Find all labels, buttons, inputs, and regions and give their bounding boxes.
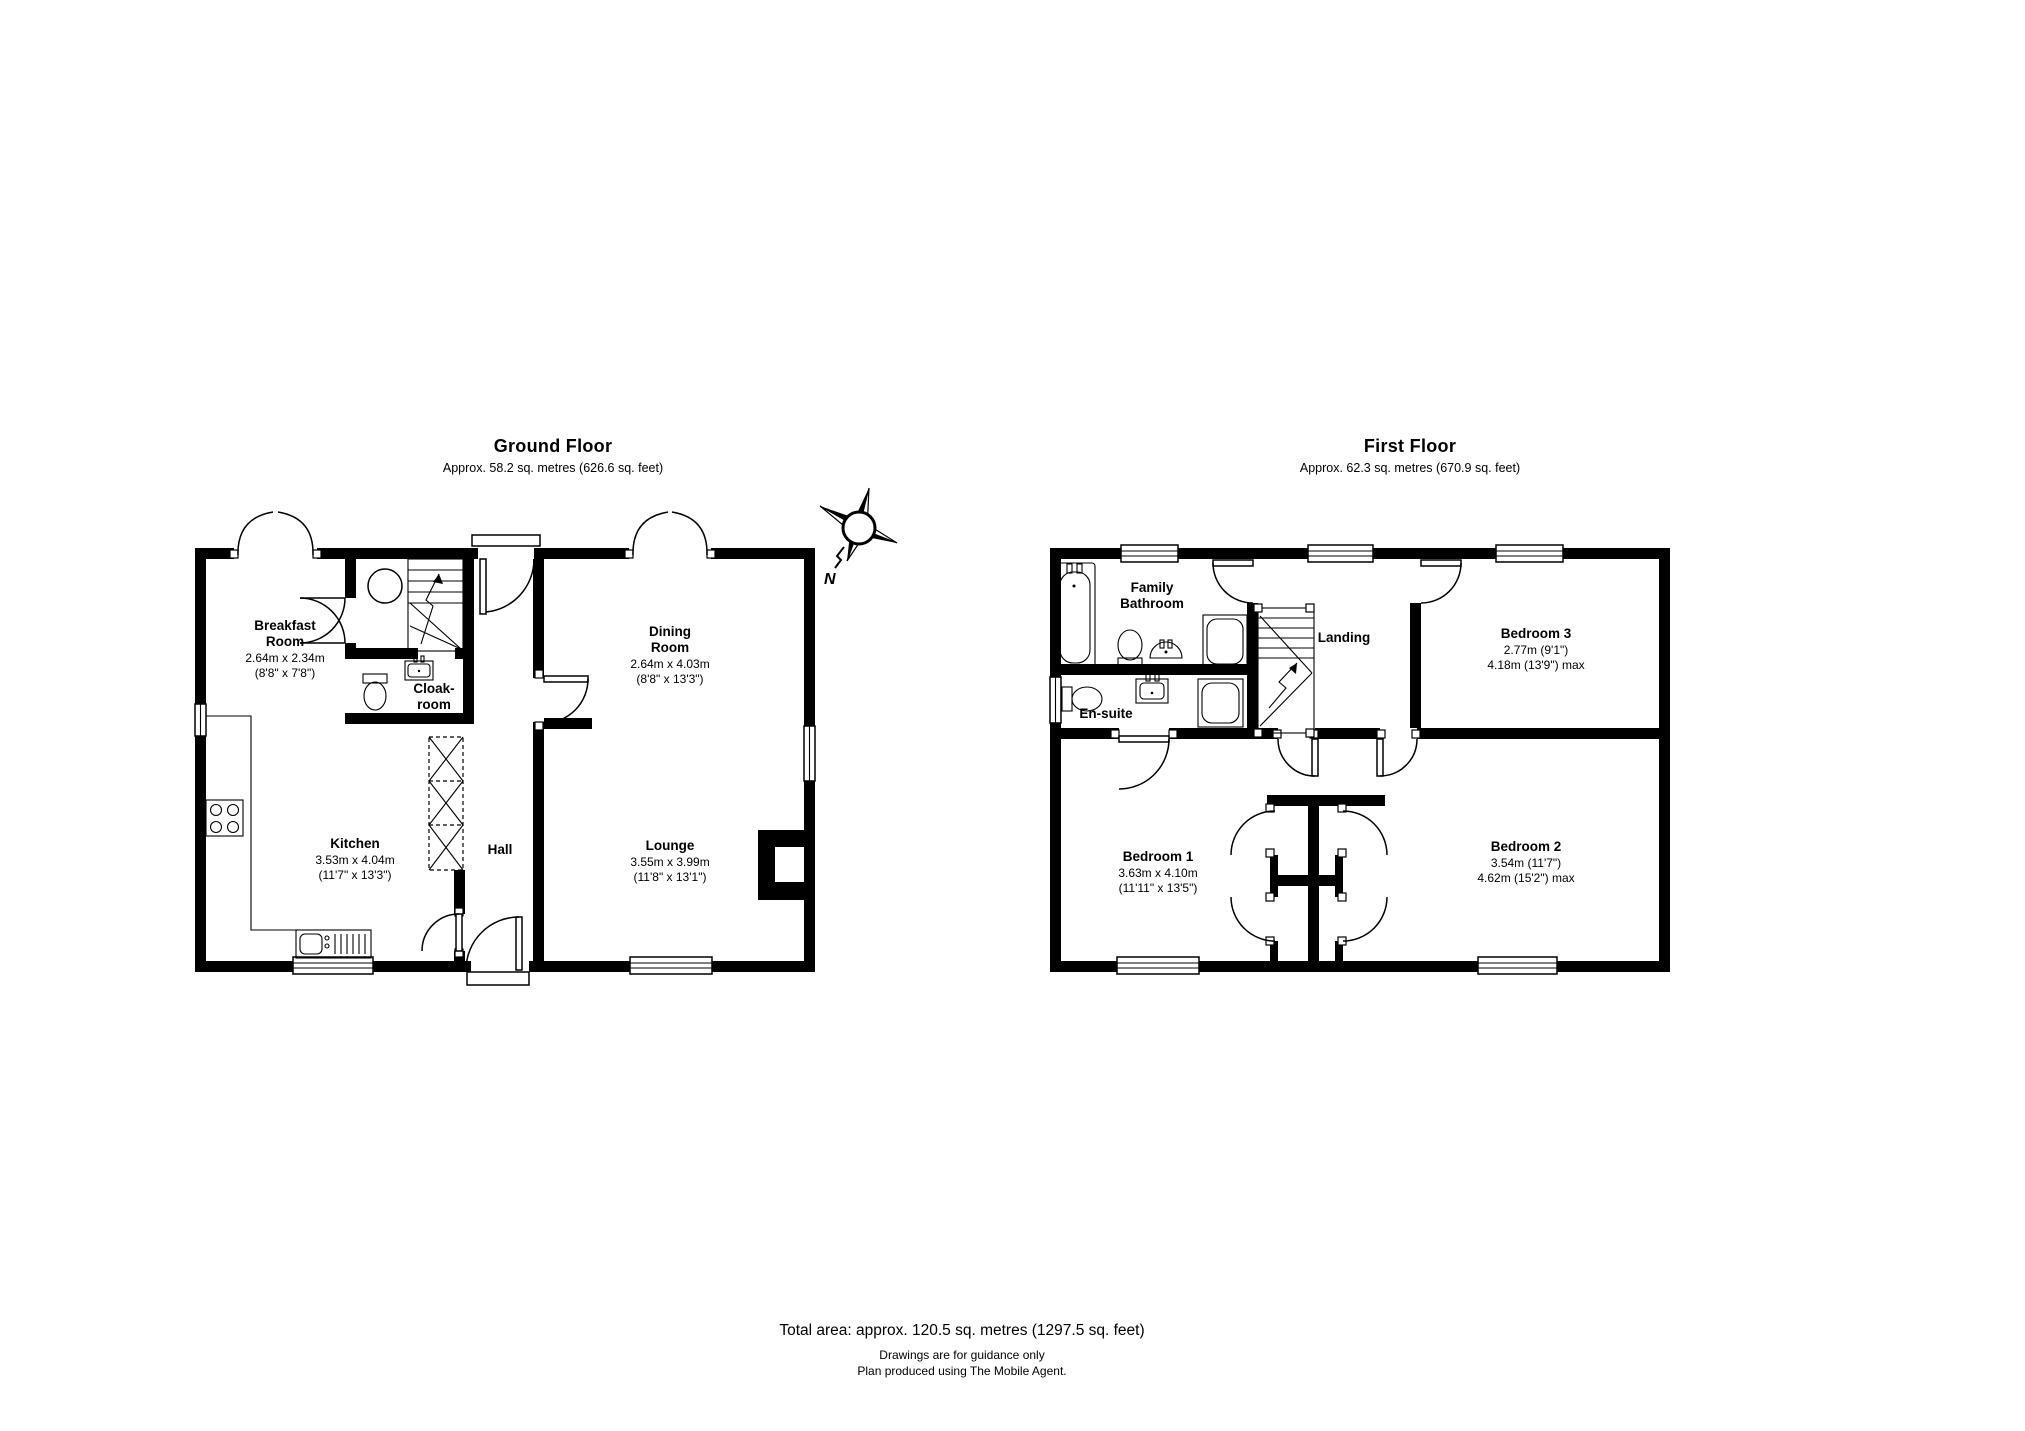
bedroom1-imperial: (11'11" x 13'5") [1119,881,1198,895]
landing-label: Landing [1318,630,1371,645]
breakfast-french-doors [230,512,321,558]
first-floor-title-block: First Floor Approx. 62.3 sq. metres (670… [1200,436,1620,475]
bedroom2-wardrobe-doors [1338,804,1387,945]
bedroom3-window [1496,545,1563,562]
lounge-side-window [804,726,815,781]
cloakroom-label2: room [417,697,451,712]
ground-floor-title: Ground Floor [343,436,763,457]
bedroom3-door [1421,560,1461,603]
bedroom1-label: Bedroom 1 [1123,849,1194,864]
breakfast-room-metric: 2.64m x 2.34m [245,651,324,665]
family-bathroom-label: Family [1131,580,1174,595]
dining-room-imperial: (8'8" x 13'3") [636,672,703,686]
dining-french-doors [625,512,715,558]
kitchen-sink [296,930,371,958]
bedroom1-window [1117,957,1199,974]
lounge-window [630,957,712,974]
breakfast-room-label2: Room [266,634,304,649]
footer: Total area: approx. 120.5 sq. metres (12… [562,1322,1362,1378]
kitchen-side-window [195,704,206,736]
ground-floor-plan: Breakfast Room 2.64m x 2.34m (8'8" x 7'8… [193,546,833,1016]
ground-floor-labels: Breakfast Room 2.64m x 2.34m (8'8" x 7'8… [245,618,709,884]
ground-floor-stairs [408,559,463,651]
landing-window [1308,545,1373,562]
first-floor-title: First Floor [1200,436,1620,457]
bedroom2-imperial: 4.62m (15'2") max [1477,871,1574,885]
ensuite-sink [1136,674,1168,703]
hall-label: Hall [488,842,513,857]
ensuite-shower [1198,679,1243,727]
kitchen-label: Kitchen [330,836,380,851]
lounge-imperial: (11'8" x 13'1") [634,870,707,884]
bedroom3-metric: 2.77m (9'1") [1504,643,1569,657]
ensuite-door [1111,730,1177,789]
bedroom2-door [1377,730,1420,776]
bedroom2-metric: 3.54m (11'7") [1491,856,1561,870]
bathroom-toilet [1118,630,1142,668]
dining-room-label2: Room [651,640,689,655]
lounge-label: Lounge [646,838,695,853]
bedroom3-label: Bedroom 3 [1501,626,1572,641]
kitchen-metric: 3.53m x 4.04m [315,853,394,867]
lounge-metric: 3.55m x 3.99m [630,855,709,869]
bedroom3-imperial: 4.18m (13'9") max [1487,658,1584,672]
breakfast-room-label: Breakfast [254,618,316,633]
dining-room-metric: 2.64m x 4.03m [630,657,709,671]
kitchen-hob [206,800,243,836]
bathroom-shower [1203,615,1247,668]
produced-note: Plan produced using The Mobile Agent. [562,1364,1362,1378]
first-floor-plan: Family Bathroom En-suite Landing Bedroom… [1048,546,1688,1016]
first-floor-stairs [1254,604,1314,737]
guidance-note: Drawings are for guidance only [562,1348,1362,1362]
ensuite-label: En-suite [1079,706,1133,721]
ground-floor-walls [195,548,815,972]
bathroom-door [1213,560,1253,603]
family-bathroom-label2: Bathroom [1120,596,1184,611]
cloakroom-label: Cloak- [413,681,454,696]
hall-cupboard [429,737,463,870]
kitchen-window [293,957,373,974]
cloakroom-sink [405,656,433,680]
lobby-basin [368,569,402,603]
bathroom-window [1121,545,1178,562]
bedroom2-label: Bedroom 2 [1491,839,1562,854]
floorplan-page: Ground Floor Approx. 58.2 sq. metres (62… [0,0,2025,1431]
kitchen-imperial: (11'7" x 13'3") [319,868,392,882]
first-floor-subtitle: Approx. 62.3 sq. metres (670.9 sq. feet) [1200,461,1620,475]
total-area-text: Total area: approx. 120.5 sq. metres (12… [562,1322,1362,1340]
bedroom2-window [1478,957,1557,974]
ground-floor-subtitle: Approx. 58.2 sq. metres (626.6 sq. feet) [343,461,763,475]
first-floor-walls [1050,548,1670,972]
dining-room-label: Dining [649,624,691,639]
bedroom1-wardrobe-doors [1231,804,1275,945]
bedroom1-metric: 3.63m x 4.10m [1118,866,1197,880]
front-door [466,917,529,985]
cloakroom-toilet [363,674,387,710]
ensuite-side-window [1050,677,1061,723]
ground-floor-title-block: Ground Floor Approx. 58.2 sq. metres (62… [343,436,763,475]
breakfast-room-imperial: (8'8" x 7'8") [255,666,315,680]
ground-floor-windows [195,704,815,974]
bathroom-basin [1150,640,1182,658]
back-door [472,535,540,614]
kitchen-door [422,908,463,957]
